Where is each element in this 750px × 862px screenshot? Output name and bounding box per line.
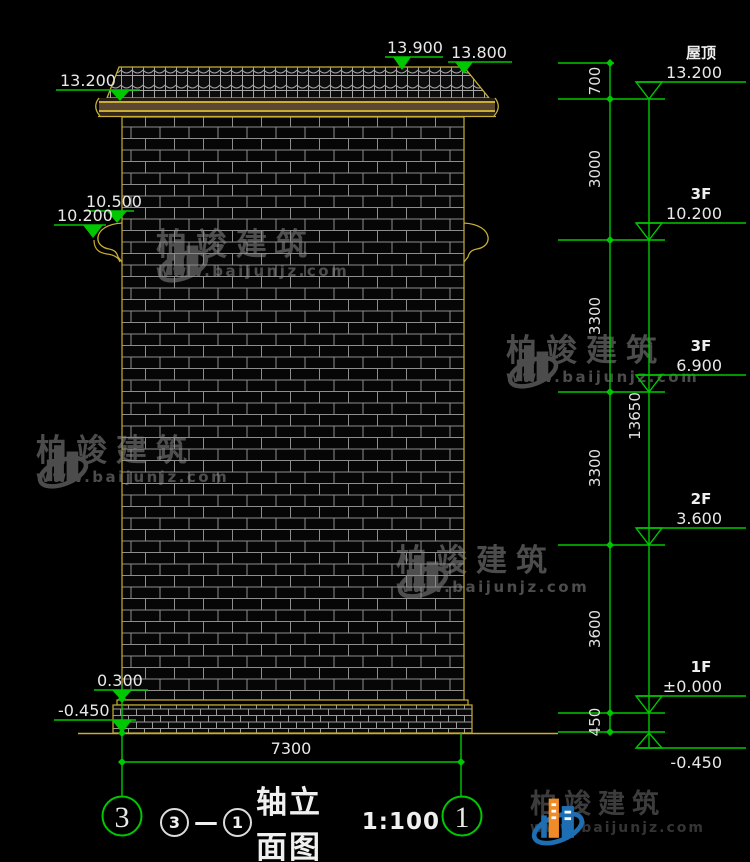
dim-450: 450 [586, 708, 604, 737]
level-elev-6900: 6.900 [676, 356, 722, 375]
axis-number-right: 1 [455, 801, 470, 834]
floor-label-roof: 屋顶 [686, 44, 716, 62]
dim-3300-a: 3300 [586, 297, 604, 335]
elev-label-eave-right: 13.800 [451, 43, 507, 62]
elev-label-plinth-top: 0.300 [97, 671, 143, 690]
brand-logo: 柏竣建筑 www.baijunjz.com [530, 791, 705, 835]
dim-3300-b: 3300 [586, 449, 604, 487]
title-axis-circle-a: 3 [160, 808, 189, 837]
dimension-annotations: 3 1 13.900 13.800 13.200 10.500 10.200 0… [0, 0, 750, 862]
title-dash: — [194, 808, 218, 836]
cad-elevation-sheet: 柏竣建筑 www.baijunjz.com 柏竣建筑 www.baijunjz.… [0, 0, 750, 862]
dim-3000: 3000 [586, 150, 604, 188]
title-axis-circle-b: 1 [223, 808, 252, 837]
level-elev-3600: 3.600 [676, 509, 722, 528]
level-elev-0000: ±0.000 [663, 677, 722, 696]
axis-number-left: 3 [115, 801, 130, 834]
drawing-title: 轴立面图 [256, 777, 346, 862]
dim-overall-13650: 13650 [626, 392, 644, 440]
annotation-arrows [83, 57, 614, 766]
drawing-scale: 1:100 [362, 809, 440, 835]
annotation-texts: 13.900 13.800 13.200 10.500 10.200 0.300… [57, 38, 722, 772]
drawing-title-block: 3 — 1 轴立面图 1:100 [160, 777, 440, 862]
brand-logo-icon [530, 791, 586, 851]
elev-label-ridge: 13.900 [387, 38, 443, 57]
floor-label-1f: 1F [691, 658, 712, 676]
dim-700: 700 [586, 67, 604, 96]
width-dimension: 7300 [271, 739, 312, 758]
level-elev-minus450: -0.450 [670, 753, 722, 772]
dim-3600: 3600 [586, 610, 604, 648]
level-elev-roof: 13.200 [666, 63, 722, 82]
level-elev-10200: 10.200 [666, 204, 722, 223]
elev-label-bracket-lower: 10.200 [57, 206, 113, 225]
floor-label-3f-upper: 3F [691, 185, 712, 203]
floor-label-3f: 3F [691, 337, 712, 355]
floor-label-2f: 2F [691, 490, 712, 508]
elev-label-ground-left: -0.450 [58, 701, 110, 720]
elev-label-roof-left: 13.200 [60, 71, 116, 90]
